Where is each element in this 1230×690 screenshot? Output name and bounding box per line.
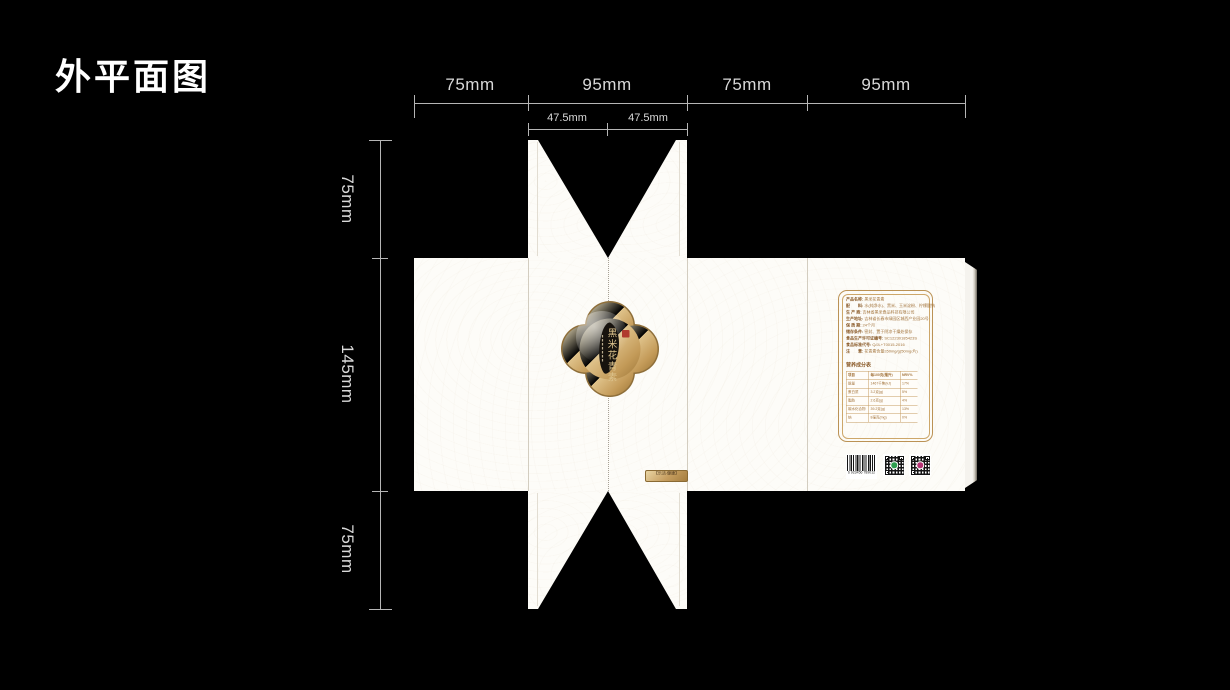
flap-top-right — [608, 140, 687, 258]
nutrition-cell: 0% — [901, 414, 918, 422]
top-dimension-line — [414, 103, 965, 104]
brand-plaque: 【乐活·健康】 — [645, 470, 688, 482]
nutrition-cell: 4% — [901, 397, 918, 405]
badge-seal-icon — [622, 330, 630, 338]
flap-top-left — [528, 140, 608, 258]
qr-finder-icon — [899, 456, 904, 461]
qr-finder-icon — [885, 470, 890, 475]
barcode: 6 923456 789012 — [846, 454, 877, 479]
barcode-bars-icon — [847, 455, 876, 471]
nutrition-cell: 碳水化合物 — [847, 406, 869, 414]
dieline-canvas: 外平面图 75mm 95mm 75mm 95mm 47.5mm 47.5mm 7… — [0, 0, 1230, 690]
brand-plaque-text: 【乐活·健康】 — [646, 471, 687, 476]
badge-title: 黑米花青素 — [606, 328, 618, 383]
nutrition-title: 营养成分表 — [846, 361, 939, 369]
nutrition-cell: 2.6克(g) — [869, 397, 900, 405]
page-title: 外平面图 — [55, 48, 211, 100]
left-dimension-line — [380, 140, 381, 609]
dimension-tick — [372, 258, 388, 259]
fold-line — [807, 258, 808, 491]
info-field-value: 吉林省黑米食品科技有限公司 — [863, 310, 915, 315]
qr-code-left — [883, 454, 905, 476]
dimension-tick — [807, 95, 808, 111]
badge-quatrefoil-icon: 黑米花青素 — [558, 301, 662, 397]
info-field-value: 密封、置于阴凉干燥处保存 — [864, 330, 912, 335]
info-fields: 产品名称:黑米花青素 配 料:水(纯净水)、黑米、玉米淀粉、柠檬酸钠 生 产 商… — [846, 296, 939, 355]
dim-label-left: 75mm — [337, 524, 357, 573]
nutrition-header-cell: 每100克(毫升) — [869, 372, 900, 380]
info-field-label: 储存条件: — [846, 330, 863, 335]
fold-line — [687, 258, 688, 491]
qr-center-logo-icon — [890, 461, 898, 469]
qr-finder-icon — [911, 456, 916, 461]
dimension-tick — [369, 609, 392, 610]
nutrition-cell: 蛋白质 — [847, 389, 869, 397]
crease-line — [679, 493, 680, 606]
dim-label-top: 75mm — [722, 75, 771, 95]
info-field-label: 食品生产许可证编号: — [846, 336, 883, 341]
nutrition-cell: 8毫克(mg) — [869, 414, 900, 422]
dim-label-top: 75mm — [445, 75, 494, 95]
nutrition-cell: 3.2克(g) — [869, 389, 900, 397]
dimension-tick — [965, 95, 966, 118]
dimension-tick — [528, 95, 529, 111]
info-field-label: 生产地址: — [846, 317, 863, 322]
qr-pattern-icon — [885, 456, 904, 475]
qr-finder-icon — [885, 456, 890, 461]
dimension-tick — [528, 123, 529, 136]
info-field-row: 注 意:花青素含量≥50mg/g(50mg/片) — [846, 348, 939, 355]
brand-badge: 黑米花青素 — [558, 301, 662, 397]
dimension-tick — [372, 491, 388, 492]
nutrition-cell: 13% — [901, 406, 918, 414]
crease-line — [537, 142, 538, 256]
info-field-label: 生 产 商: — [846, 310, 862, 315]
qr-code-right — [909, 454, 931, 476]
crease-line — [537, 493, 538, 606]
nutrition-header-cell: NRV% — [901, 372, 918, 380]
qr-finder-icon — [925, 456, 930, 461]
dimension-tick — [369, 140, 392, 141]
info-field-label: 保 质 期: — [846, 323, 862, 328]
info-panel-content: 产品名称:黑米花青素 配 料:水(纯净水)、黑米、玉米淀粉、柠檬酸钠 生 产 商… — [846, 296, 939, 446]
info-panel-frame: 产品名称:黑米花青素 配 料:水(纯净水)、黑米、玉米淀粉、柠檬酸钠 生 产 商… — [838, 290, 933, 442]
dim-label-top: 95mm — [582, 75, 631, 95]
info-field-label: 产品名称: — [846, 297, 863, 302]
flap-bottom-left — [528, 491, 608, 609]
nutrition-cell: 脂肪 — [847, 397, 869, 405]
info-field-value: 24个月 — [863, 323, 875, 328]
qr-pattern-icon — [911, 456, 930, 475]
info-field-value: 吉林省长春市绿园区城西产业园20号 — [864, 317, 928, 322]
dim-label-top: 95mm — [861, 75, 910, 95]
dimension-tick — [607, 123, 608, 136]
dim-label-sub: 47.5mm — [628, 112, 668, 124]
crease-line — [679, 142, 680, 256]
info-field-label: 食品标准代号: — [846, 343, 871, 348]
info-field-value: 水(纯净水)、黑米、玉米淀粉、柠檬酸钠 — [864, 304, 935, 309]
fold-line — [528, 258, 529, 491]
nutrition-cell: 39.2克(g) — [869, 406, 900, 414]
nutrition-cell: 1467千焦(kJ) — [869, 380, 900, 388]
info-field-label: 配 料: — [846, 304, 863, 309]
qr-finder-icon — [911, 470, 916, 475]
dim-label-left: 75mm — [337, 174, 357, 223]
barcode-digits: 6 923456 789012 — [847, 471, 876, 475]
dim-label-left: 145mm — [337, 344, 357, 403]
nutrition-cell: 5% — [901, 389, 918, 397]
info-field-value: 花青素含量≥50mg/g(50mg/片) — [864, 349, 917, 354]
flap-bottom-right — [608, 491, 687, 609]
info-field-value: Q/JL+T0015-2016 — [872, 343, 904, 348]
glue-flap — [965, 262, 977, 488]
qr-center-logo-icon — [916, 461, 924, 469]
dimension-tick — [687, 95, 688, 111]
dimension-tick — [687, 123, 688, 136]
nutrition-cell: 钠 — [847, 414, 869, 422]
nutrition-rows: 能量 1467千焦(kJ) 17% 蛋白质 3.2克(g) 5% 脂肪 2.6克… — [846, 380, 918, 423]
nutrition-cell: 能量 — [847, 380, 869, 388]
dimension-tick — [414, 95, 415, 118]
nutrition-cell: 17% — [901, 380, 918, 388]
info-field-label: 注 意: — [846, 349, 863, 354]
info-field-value: 黑米花青素 — [864, 297, 884, 302]
dim-label-sub: 47.5mm — [547, 112, 587, 124]
nutrition-header-cell: 项目 — [847, 372, 869, 380]
info-field-value: SC12230185423S — [884, 336, 917, 341]
nutrition-table: 项目 每100克(毫升) NRV% — [846, 371, 918, 380]
